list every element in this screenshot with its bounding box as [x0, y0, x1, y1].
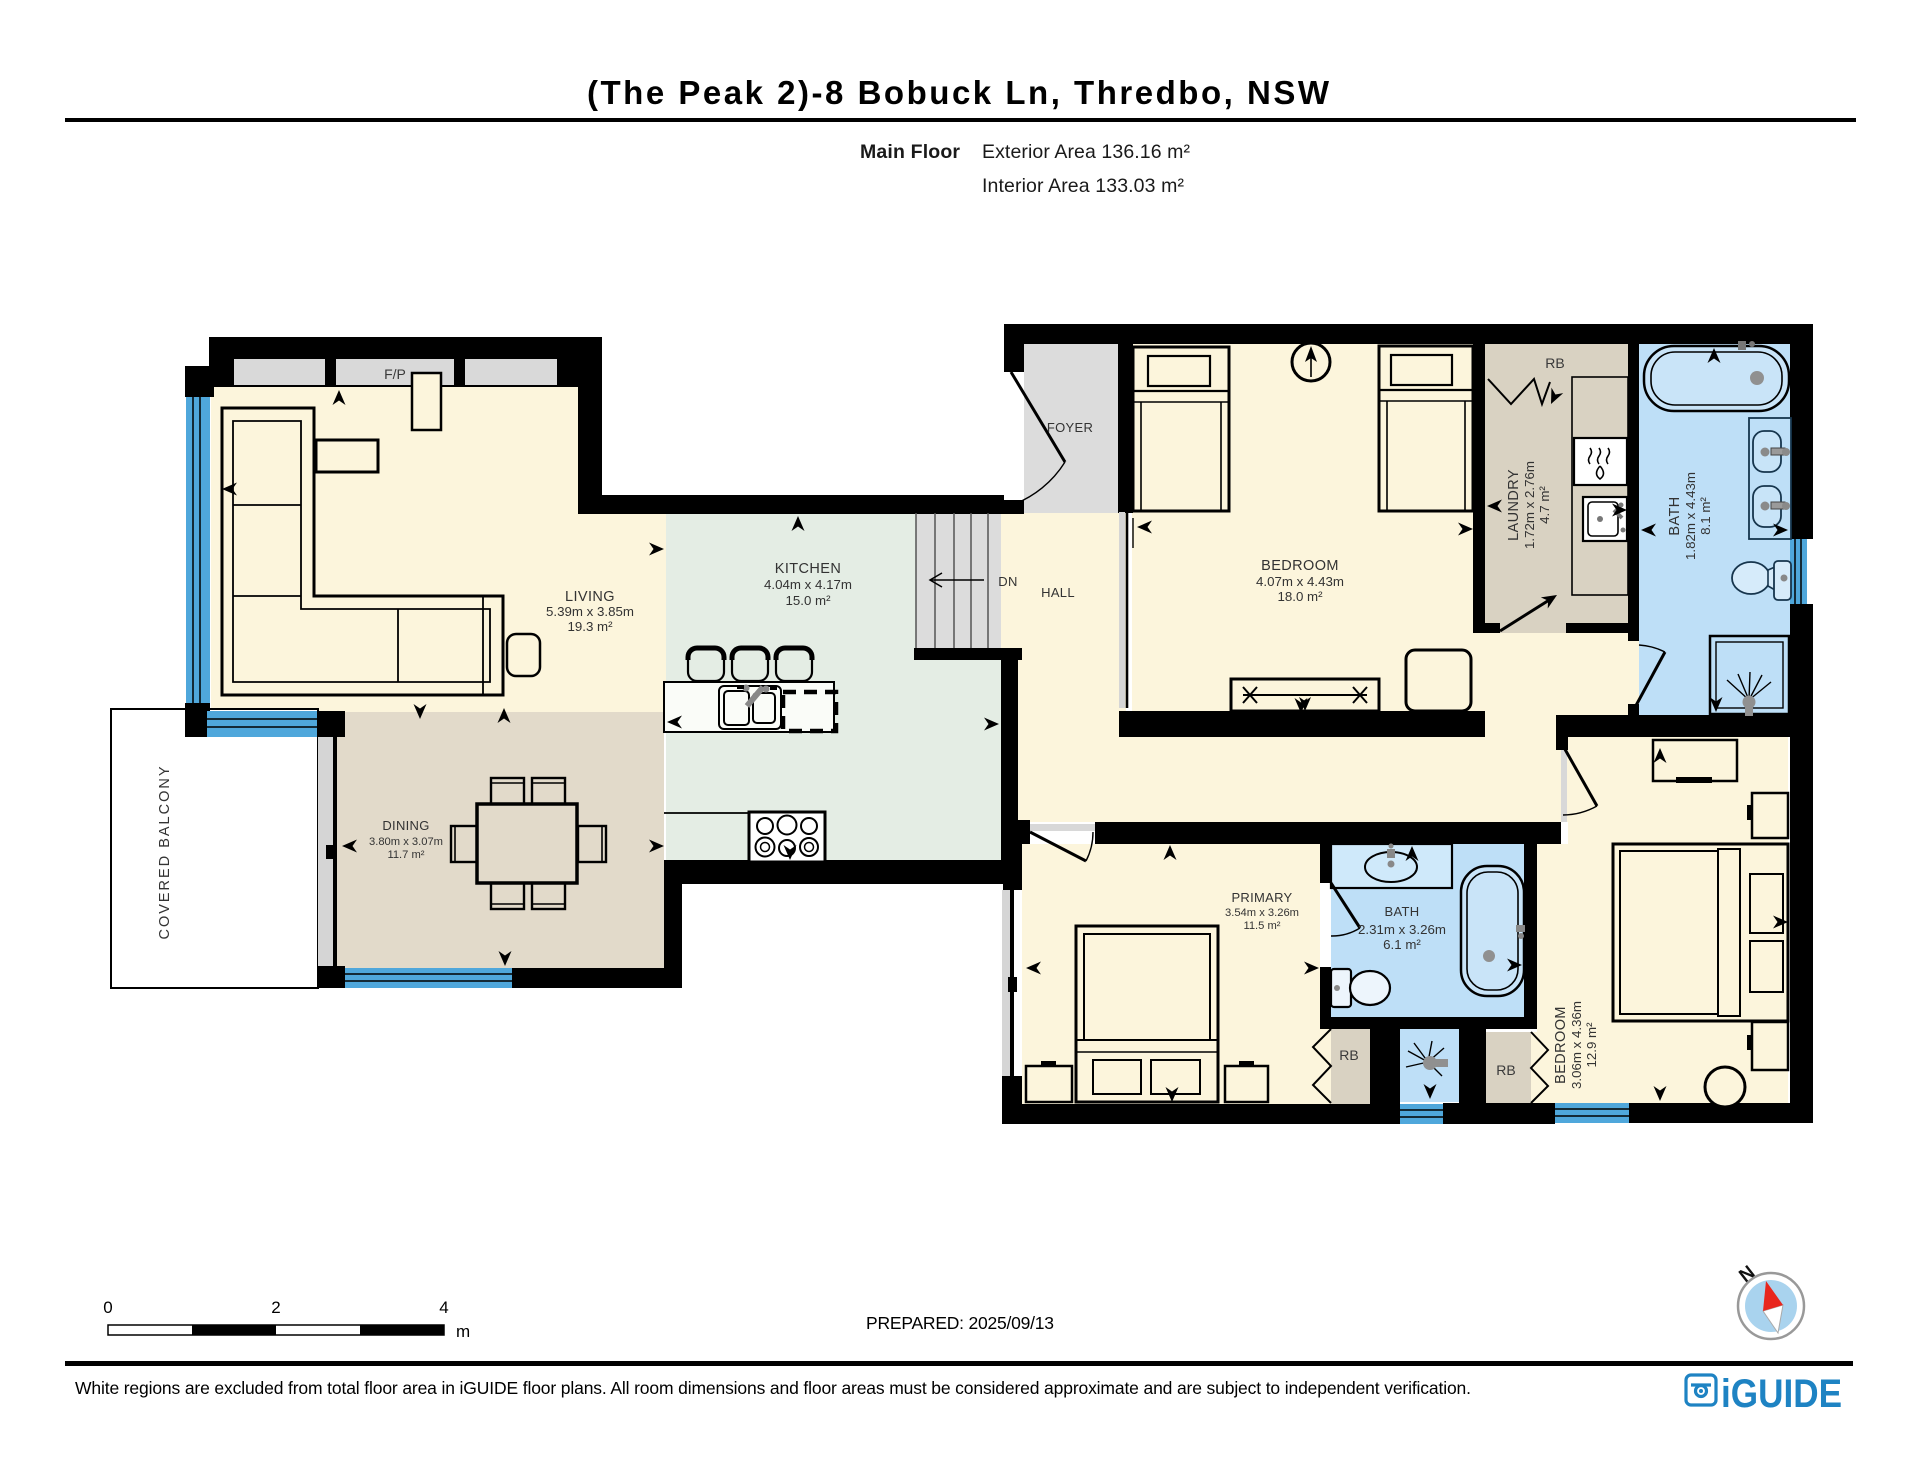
- svg-text:Main Floor: Main Floor: [860, 141, 960, 163]
- svg-text:6.1 m²: 6.1 m²: [1383, 937, 1421, 952]
- svg-text:4.04m x 4.17m: 4.04m x 4.17m: [764, 577, 852, 592]
- svg-text:Exterior Area 136.16 m²: Exterior Area 136.16 m²: [982, 141, 1191, 163]
- svg-text:BEDROOM: BEDROOM: [1261, 558, 1339, 574]
- svg-text:KITCHEN: KITCHEN: [775, 561, 841, 577]
- svg-text:4.7 m²: 4.7 m²: [1537, 486, 1552, 524]
- svg-text:2: 2: [271, 1298, 280, 1317]
- svg-text:White regions are excluded fro: White regions are excluded from total fl…: [75, 1378, 1471, 1398]
- svg-text:BATH: BATH: [1385, 904, 1420, 919]
- svg-text:F/P: F/P: [384, 366, 406, 382]
- svg-text:RB: RB: [1545, 355, 1564, 371]
- svg-text:11.5 m²: 11.5 m²: [1243, 920, 1280, 932]
- svg-text:RB: RB: [1339, 1047, 1358, 1063]
- svg-text:4: 4: [439, 1298, 448, 1317]
- svg-text:4.07m x 4.43m: 4.07m x 4.43m: [1256, 574, 1344, 589]
- svg-text:HALL: HALL: [1041, 585, 1075, 600]
- svg-text:BEDROOM: BEDROOM: [1553, 1006, 1569, 1084]
- svg-text:19.3 m²: 19.3 m²: [567, 619, 613, 634]
- svg-text:2.31m x 3.26m: 2.31m x 3.26m: [1358, 922, 1446, 937]
- svg-text:1.72m x 2.76m: 1.72m x 2.76m: [1522, 461, 1537, 549]
- svg-text:3.54m x 3.26m: 3.54m x 3.26m: [1225, 907, 1299, 919]
- svg-text:PREPARED: 2025/09/13: PREPARED: 2025/09/13: [866, 1313, 1054, 1333]
- svg-text:18.0 m²: 18.0 m²: [1277, 589, 1323, 604]
- svg-text:8.1 m²: 8.1 m²: [1698, 497, 1713, 535]
- svg-text:5.39m x 3.85m: 5.39m x 3.85m: [546, 604, 634, 619]
- svg-text:RB: RB: [1496, 1062, 1515, 1078]
- svg-text:3.80m x 3.07m: 3.80m x 3.07m: [369, 836, 443, 848]
- svg-text:DN: DN: [998, 574, 1017, 589]
- svg-text:(The Peak 2)-8 Bobuck Ln, Thre: (The Peak 2)-8 Bobuck Ln, Thredbo, NSW: [587, 74, 1330, 111]
- svg-text:COVERED BALCONY: COVERED BALCONY: [157, 764, 173, 939]
- svg-text:11.7 m²: 11.7 m²: [387, 849, 424, 861]
- svg-text:BATH: BATH: [1667, 496, 1683, 535]
- svg-text:DINING: DINING: [382, 818, 429, 833]
- svg-text:m: m: [456, 1322, 470, 1341]
- svg-text:iGUIDE: iGUIDE: [1721, 1372, 1842, 1416]
- svg-text:LAUNDRY: LAUNDRY: [1506, 469, 1522, 541]
- svg-text:1.82m x 4.43m: 1.82m x 4.43m: [1683, 472, 1698, 560]
- svg-text:LIVING: LIVING: [565, 589, 615, 605]
- svg-text:0: 0: [103, 1298, 112, 1317]
- svg-text:3.06m x 4.36m: 3.06m x 4.36m: [1569, 1001, 1584, 1089]
- svg-text:FOYER: FOYER: [1047, 420, 1093, 435]
- svg-text:15.0 m²: 15.0 m²: [785, 593, 831, 608]
- svg-text:Interior Area 133.03 m²: Interior Area 133.03 m²: [982, 175, 1185, 197]
- svg-text:12.9 m²: 12.9 m²: [1584, 1022, 1599, 1068]
- svg-text:PRIMARY: PRIMARY: [1231, 890, 1292, 905]
